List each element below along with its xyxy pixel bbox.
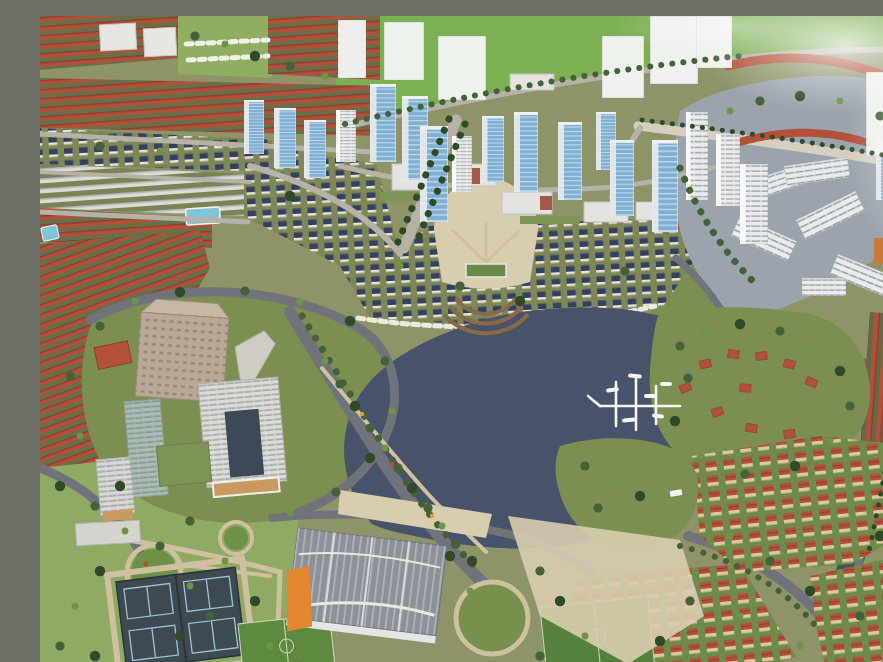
tree bbox=[267, 643, 274, 650]
villa bbox=[745, 423, 757, 433]
tree bbox=[467, 588, 474, 595]
tree bbox=[467, 556, 477, 566]
apartment-slab bbox=[802, 278, 846, 296]
tree bbox=[670, 416, 680, 426]
tree bbox=[77, 433, 84, 440]
tree bbox=[65, 371, 74, 380]
flower-bed bbox=[144, 562, 149, 567]
tree bbox=[95, 141, 104, 150]
tree bbox=[157, 148, 164, 155]
white-tower bbox=[716, 134, 740, 206]
tree bbox=[451, 539, 460, 548]
red-row-band-b bbox=[40, 78, 380, 136]
tree bbox=[655, 636, 665, 646]
tree bbox=[423, 503, 432, 512]
tree bbox=[555, 596, 565, 606]
scene-canvas bbox=[40, 16, 883, 662]
tree bbox=[445, 551, 455, 561]
frosted-tower bbox=[438, 36, 486, 100]
villa-cluster bbox=[692, 436, 883, 572]
tree bbox=[790, 461, 800, 471]
boat bbox=[660, 382, 672, 386]
villa bbox=[756, 351, 768, 360]
tree bbox=[55, 641, 64, 650]
glass-atrium bbox=[225, 409, 265, 478]
tree bbox=[380, 356, 389, 365]
tree bbox=[845, 401, 854, 410]
tree bbox=[122, 528, 129, 535]
tree bbox=[389, 408, 396, 415]
tree bbox=[835, 366, 845, 376]
tree bbox=[397, 263, 404, 270]
tree bbox=[365, 423, 374, 432]
tree bbox=[455, 281, 464, 290]
brick-building bbox=[540, 196, 552, 210]
tree bbox=[322, 358, 329, 365]
tree bbox=[297, 299, 304, 306]
tree bbox=[90, 501, 99, 510]
tree bbox=[95, 321, 104, 330]
blue-tower bbox=[274, 108, 296, 168]
blue-tower bbox=[514, 112, 538, 192]
tree bbox=[250, 596, 260, 606]
tree bbox=[365, 453, 375, 463]
tree bbox=[535, 651, 544, 660]
blue-tower bbox=[482, 116, 504, 182]
garden-lawn bbox=[224, 526, 248, 550]
white-slab bbox=[143, 27, 176, 57]
flower-shrub bbox=[390, 462, 394, 466]
tree bbox=[72, 603, 79, 610]
tree bbox=[740, 469, 749, 478]
tree bbox=[285, 61, 294, 70]
tree bbox=[607, 478, 614, 485]
tree bbox=[187, 583, 194, 590]
flower-shrub bbox=[360, 412, 364, 416]
tree bbox=[190, 31, 199, 40]
tree bbox=[675, 341, 684, 350]
tree bbox=[683, 373, 692, 382]
green-roof-podium bbox=[156, 442, 211, 486]
white-slab bbox=[99, 23, 136, 51]
frosted-tower bbox=[384, 22, 424, 80]
tree bbox=[439, 523, 446, 530]
villa bbox=[783, 429, 795, 438]
tree bbox=[240, 286, 249, 295]
tennis-courts bbox=[107, 558, 255, 662]
tree bbox=[55, 481, 65, 491]
tree bbox=[345, 316, 355, 326]
white-tower bbox=[740, 164, 768, 244]
orange-accent-building bbox=[874, 238, 883, 264]
tree bbox=[205, 611, 214, 620]
tree bbox=[350, 401, 360, 411]
tree bbox=[805, 586, 815, 596]
frosted-tower bbox=[338, 20, 366, 78]
white-tower bbox=[336, 110, 356, 162]
tree bbox=[250, 51, 260, 61]
tree bbox=[382, 445, 389, 452]
tree bbox=[222, 558, 229, 565]
tree bbox=[393, 463, 402, 472]
podium-green-roof bbox=[520, 216, 580, 224]
tree bbox=[175, 287, 185, 297]
flower-shrub bbox=[430, 514, 434, 518]
tree bbox=[827, 438, 834, 445]
blue-tower bbox=[558, 122, 582, 200]
tree bbox=[95, 566, 105, 576]
villa bbox=[727, 349, 739, 358]
tree bbox=[331, 487, 340, 496]
tree bbox=[685, 596, 694, 605]
villa bbox=[740, 384, 752, 393]
stage-green-roof bbox=[466, 264, 506, 277]
tree bbox=[593, 503, 602, 512]
tree bbox=[697, 453, 704, 460]
tree bbox=[727, 533, 734, 540]
tree bbox=[287, 510, 294, 517]
lowrise-block bbox=[75, 520, 140, 545]
tree bbox=[222, 41, 229, 48]
blue-tower bbox=[304, 120, 326, 178]
tree bbox=[635, 491, 645, 501]
scale-model-photo bbox=[40, 16, 883, 662]
boat bbox=[644, 394, 656, 398]
tree bbox=[812, 343, 819, 350]
tree bbox=[185, 516, 194, 525]
tree bbox=[567, 483, 574, 490]
tree bbox=[115, 481, 125, 491]
tree bbox=[285, 191, 295, 201]
tree bbox=[702, 328, 709, 335]
tree bbox=[797, 643, 804, 650]
tree bbox=[155, 541, 164, 550]
blue-tower bbox=[370, 84, 396, 162]
tree bbox=[175, 631, 185, 641]
tree bbox=[620, 266, 629, 275]
tree bbox=[90, 651, 100, 661]
tree bbox=[765, 556, 774, 565]
blue-tower bbox=[244, 100, 264, 154]
tree bbox=[735, 319, 745, 329]
tree bbox=[515, 296, 525, 306]
tree bbox=[855, 611, 864, 620]
tree bbox=[580, 461, 589, 470]
tree bbox=[132, 298, 139, 305]
blue-tower bbox=[610, 140, 634, 216]
tree bbox=[727, 108, 734, 115]
tree bbox=[322, 73, 329, 80]
tree bbox=[335, 379, 344, 388]
tree bbox=[582, 633, 589, 640]
tree bbox=[775, 326, 784, 335]
tree bbox=[577, 283, 584, 290]
small-pool bbox=[41, 224, 60, 241]
tree bbox=[737, 613, 744, 620]
tree bbox=[535, 566, 544, 575]
tree bbox=[407, 483, 417, 493]
blue-tower bbox=[652, 140, 678, 232]
